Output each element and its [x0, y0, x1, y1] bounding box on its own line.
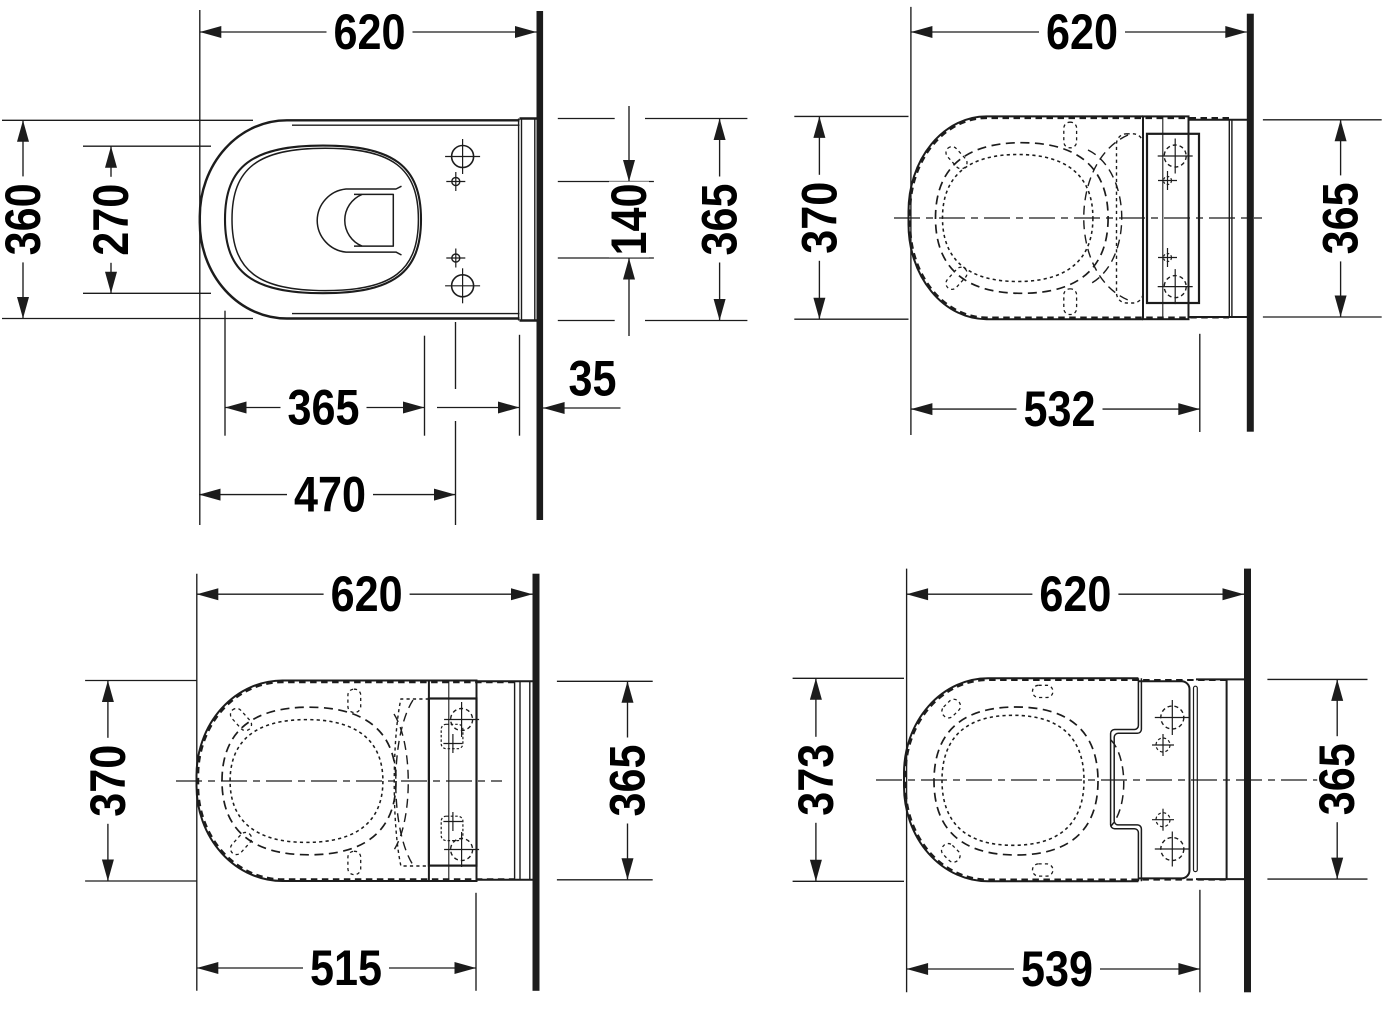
svg-text:365: 365	[1309, 743, 1365, 815]
svg-text:539: 539	[1021, 941, 1093, 997]
svg-text:365: 365	[288, 380, 360, 436]
svg-text:620: 620	[331, 566, 403, 622]
svg-text:370: 370	[791, 182, 847, 254]
svg-text:140: 140	[601, 184, 657, 256]
svg-text:360: 360	[0, 183, 51, 255]
svg-text:373: 373	[788, 744, 844, 816]
svg-text:532: 532	[1024, 381, 1096, 437]
svg-text:365: 365	[1313, 182, 1369, 254]
svg-text:365: 365	[692, 184, 748, 256]
svg-text:620: 620	[1039, 566, 1111, 622]
svg-text:470: 470	[294, 467, 366, 523]
svg-text:620: 620	[334, 4, 406, 60]
svg-text:370: 370	[80, 745, 136, 817]
svg-text:270: 270	[83, 184, 139, 256]
svg-text:35: 35	[569, 351, 617, 407]
svg-text:515: 515	[310, 940, 382, 996]
svg-text:620: 620	[1046, 4, 1118, 60]
svg-text:365: 365	[600, 745, 656, 817]
